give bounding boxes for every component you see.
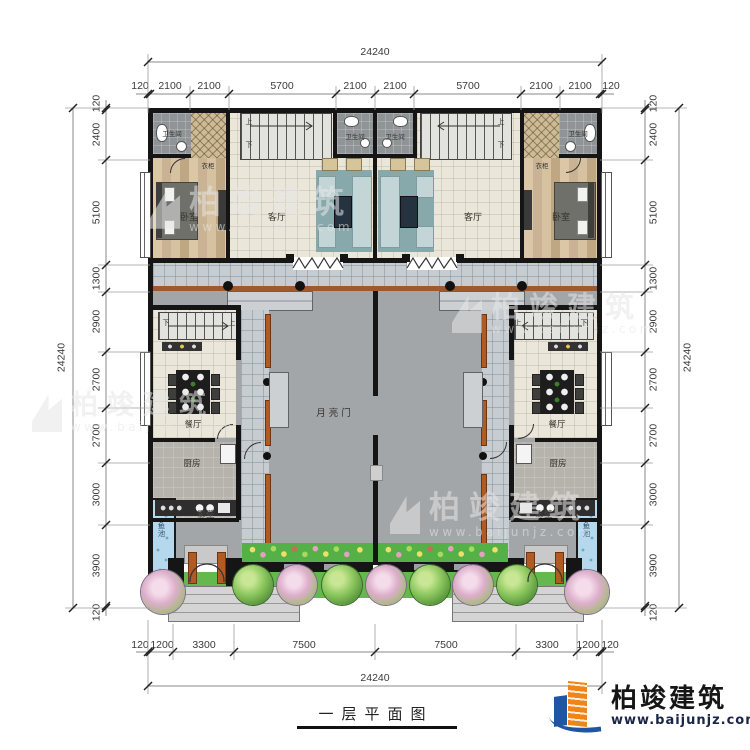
tree-icon	[322, 565, 362, 605]
company-logo-website: www.baijunjz.com	[611, 713, 750, 728]
column-marker	[402, 254, 410, 262]
sofa-side	[318, 226, 336, 248]
dim-label: 2700	[91, 358, 104, 402]
dim-label: 120	[588, 639, 632, 651]
wall-bedroom-right	[520, 108, 524, 258]
chair	[532, 402, 541, 414]
gate-post	[555, 552, 564, 584]
bay-window	[601, 172, 612, 258]
folding-door-right	[407, 257, 457, 270]
dim-label: 3900	[648, 544, 661, 588]
bay-window	[140, 172, 151, 258]
room-label-bedroom-right: 卧室	[541, 210, 581, 223]
fridge-left	[220, 444, 236, 464]
chair	[168, 374, 177, 386]
stair-label-down: 下	[495, 140, 507, 150]
dim-label: 2700	[648, 358, 661, 402]
wall-block-bottom	[153, 258, 293, 263]
column-marker	[340, 254, 348, 262]
tree-icon	[453, 565, 493, 605]
gate-post	[217, 552, 226, 584]
wall-moon-gate-upper	[373, 291, 378, 396]
room-label-living-left: 客厅	[257, 210, 297, 223]
sink-icon	[565, 141, 576, 152]
dim-overall-left: 24240	[56, 336, 69, 380]
chair	[211, 374, 220, 386]
drawing-title: 一层平面图	[295, 703, 457, 724]
tree-icon	[233, 565, 273, 605]
stair-label-up: 上	[512, 318, 524, 328]
armchair	[322, 158, 338, 171]
chair	[532, 388, 541, 400]
room-label-living-right: 客厅	[453, 210, 493, 223]
bed-right-headboard	[588, 182, 594, 238]
dim-label: 2100	[187, 80, 231, 92]
stair-label-down: 下	[578, 318, 590, 328]
dim-label: 3900	[91, 544, 104, 588]
dim-label: 2100	[148, 80, 192, 92]
wall-bath-center	[333, 154, 377, 158]
armchair	[346, 158, 362, 171]
dim-label: 2400	[648, 113, 661, 157]
column-icon	[445, 281, 455, 291]
dim-label: 1300	[91, 257, 104, 301]
coffee-table-right	[400, 196, 418, 228]
dim-label: 3000	[648, 473, 661, 517]
sink-icon	[176, 141, 187, 152]
wall-block-bottom	[343, 258, 407, 263]
stair-label-up: 上	[495, 117, 507, 127]
floor-plan-page: { "title": "一层平面图", "logo": { "company":…	[0, 0, 750, 750]
wardrobe-left	[191, 113, 226, 158]
stair-label-up: 上	[243, 117, 255, 127]
corridor-step-left	[269, 372, 289, 428]
dim-label: 120	[91, 591, 104, 635]
room-label-wardrobe-right: 衣柜	[522, 160, 562, 170]
toilet-icon	[344, 116, 359, 127]
stair-label-down: 下	[160, 318, 172, 328]
room-label-dining-right: 餐厅	[537, 418, 577, 430]
moon-gate-block	[370, 465, 383, 481]
dim-label: 2900	[648, 300, 661, 344]
room-label-bath-center-left: 卫生间	[335, 131, 375, 141]
dim-label: 120	[589, 80, 633, 92]
pillow	[164, 187, 175, 202]
room-label-dining-left: 餐厅	[173, 418, 213, 430]
dim-label: 3300	[182, 639, 226, 651]
armchair	[414, 158, 430, 171]
room-label-fish-pond-left: 鱼池	[156, 522, 167, 537]
column-icon	[223, 281, 233, 291]
pillow	[577, 187, 588, 202]
garden-bed-left	[242, 543, 373, 562]
dim-label: 3300	[525, 639, 569, 651]
company-logo-icon	[550, 680, 602, 734]
wall-block-bottom	[457, 258, 597, 263]
dining-table-left	[176, 370, 210, 414]
dim-label: 2100	[333, 80, 377, 92]
stair-label-down: 下	[243, 140, 255, 150]
dim-label: 2900	[91, 300, 104, 344]
dim-label: 5700	[260, 80, 304, 92]
drawing-title-underline	[297, 726, 457, 729]
bay-window	[140, 352, 151, 426]
sofa-side	[416, 226, 434, 248]
bed-left-headboard	[156, 182, 162, 238]
wall-wing-east-left	[236, 425, 241, 520]
dining-table-right	[540, 370, 574, 414]
tree-icon	[497, 565, 537, 605]
corridor-post	[481, 314, 487, 368]
room-label-kitchen-left: 厨房	[172, 457, 212, 469]
sofa-side	[416, 176, 434, 198]
sofa-side	[318, 176, 336, 198]
folding-door-left	[293, 257, 343, 270]
room-label-screen-wall-right: 影壁	[524, 508, 564, 520]
tree-icon	[277, 565, 317, 605]
corridor-step-right	[463, 372, 483, 428]
wall-wing-west-right	[509, 425, 514, 520]
wall-bath-tl	[153, 154, 191, 158]
chair	[211, 402, 220, 414]
fridge-right	[516, 444, 532, 464]
chair	[575, 402, 584, 414]
wall-wing-north-left	[153, 305, 241, 310]
tree-icon	[366, 565, 406, 605]
dim-label: 3000	[91, 473, 104, 517]
toilet-icon	[393, 116, 408, 127]
dim-overall-bottom: 24240	[353, 672, 397, 684]
dim-label: 2700	[91, 414, 104, 458]
dim-label: 2100	[519, 80, 563, 92]
column-icon	[517, 281, 527, 291]
wall-bedroom-left	[226, 108, 230, 258]
wall-dining-kitchen-right	[535, 438, 597, 442]
dim-label: 2100	[373, 80, 417, 92]
chair	[575, 374, 584, 386]
corridor-post	[265, 314, 271, 368]
sofa-main-right	[380, 176, 400, 248]
room-label-fish-pond-right: 鱼池	[581, 522, 592, 537]
tree-icon	[565, 570, 609, 614]
column-marker	[286, 254, 294, 262]
wall-moon-gate-lower	[373, 435, 378, 565]
wardrobe-right	[524, 113, 559, 158]
room-label-wardrobe-left: 衣柜	[188, 160, 228, 170]
chair	[168, 388, 177, 400]
room-label-moon-gate: 月亮门	[299, 405, 371, 419]
dim-label: 1200	[140, 639, 184, 651]
column-icon	[263, 452, 271, 460]
logo-swoosh	[549, 707, 602, 739]
gate-post	[188, 552, 197, 584]
room-label-bath-topleft: 卫生间	[152, 128, 192, 138]
bay-window	[601, 352, 612, 426]
tv-cabinet-left	[218, 190, 226, 230]
wall-wing-west-right	[509, 305, 514, 360]
wall-dining-kitchen-left	[153, 438, 215, 442]
dim-label: 2700	[648, 414, 661, 458]
sofa-main-left	[352, 176, 372, 248]
room-label-kitchen-right: 厨房	[538, 457, 578, 469]
dim-label: 5100	[91, 191, 104, 235]
dim-label: 1300	[648, 257, 661, 301]
chair	[168, 402, 177, 414]
dim-label: 7500	[424, 639, 468, 651]
room-label-bedroom-left: 卧室	[169, 210, 209, 223]
sideboard-right	[548, 342, 588, 351]
chair	[575, 388, 584, 400]
dim-label: 120	[648, 591, 661, 635]
room-label-screen-wall-left: 影壁	[186, 508, 226, 520]
tree-icon	[410, 565, 450, 605]
company-logo-name: 柏竣建筑	[611, 686, 750, 713]
column-marker	[456, 254, 464, 262]
dim-label: 2400	[91, 113, 104, 157]
garden-bed-right	[378, 543, 508, 562]
room-label-bath-topright: 卫生间	[558, 128, 598, 138]
armchair	[390, 158, 406, 171]
dim-label: 5100	[648, 191, 661, 235]
column-icon	[479, 452, 487, 460]
room-label-bath-center-right: 卫生间	[375, 131, 415, 141]
wall-bath-center	[377, 154, 417, 158]
veranda-floor	[153, 263, 597, 288]
sideboard-left	[162, 342, 202, 351]
tree-icon	[141, 570, 185, 614]
chair	[211, 388, 220, 400]
chair	[532, 374, 541, 386]
dim-label: 7500	[282, 639, 326, 651]
wall-wing-north-right	[509, 305, 597, 310]
watermark-logo-icon	[32, 394, 62, 432]
tv-cabinet-right	[524, 190, 532, 230]
dim-label: 5700	[446, 80, 490, 92]
company-logo: 柏竣建筑 www.baijunjz.com	[550, 676, 746, 738]
dim-overall-top: 24240	[353, 46, 397, 58]
wall-wing-east-left	[236, 305, 241, 360]
column-icon	[295, 281, 305, 291]
coffee-table-left	[334, 196, 352, 228]
dim-overall-right: 24240	[682, 336, 695, 380]
stair-label-up: 上	[226, 318, 238, 328]
